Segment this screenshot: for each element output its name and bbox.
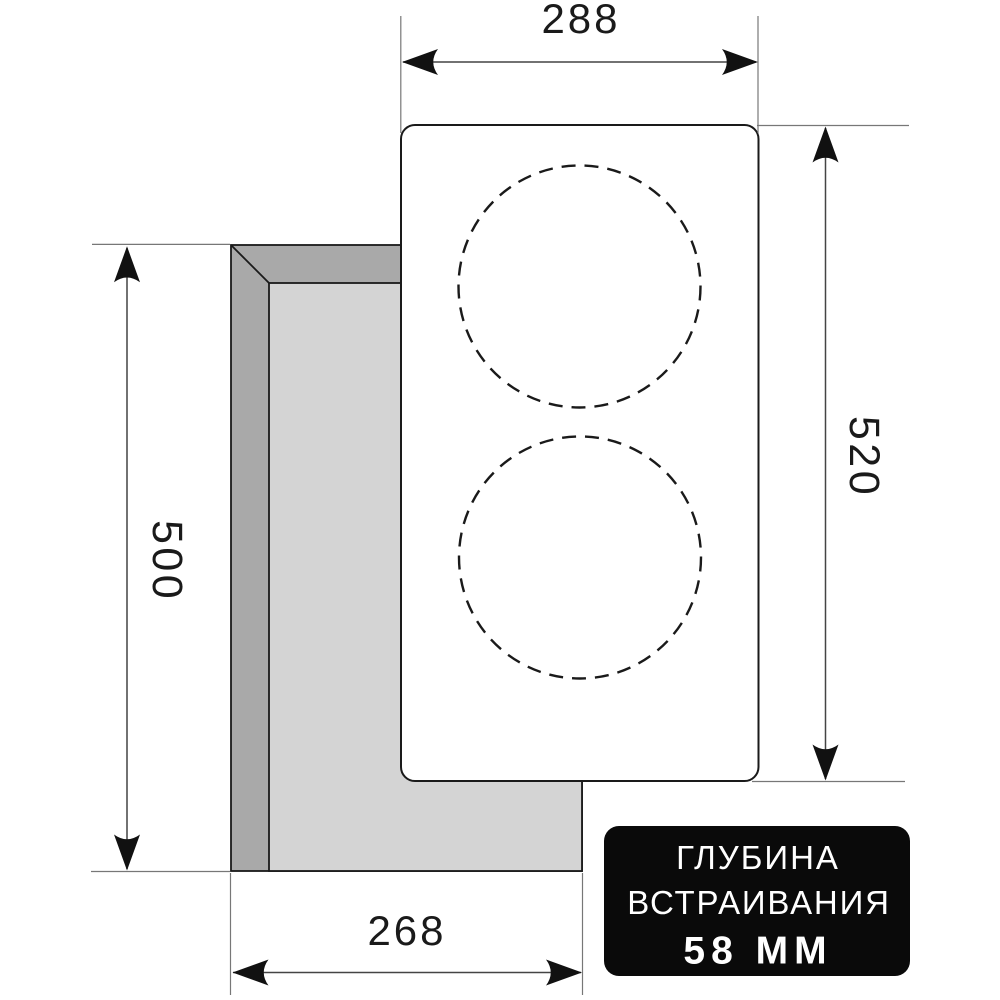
svg-text:500: 500 <box>143 520 191 602</box>
svg-text:58 ММ: 58 ММ <box>683 930 832 973</box>
svg-text:520: 520 <box>840 416 888 498</box>
svg-text:ГЛУБИНА: ГЛУБИНА <box>676 839 840 876</box>
svg-text:288: 288 <box>541 0 620 42</box>
svg-text:268: 268 <box>367 907 446 954</box>
svg-text:ВСТРАИВАНИЯ: ВСТРАИВАНИЯ <box>627 884 890 921</box>
